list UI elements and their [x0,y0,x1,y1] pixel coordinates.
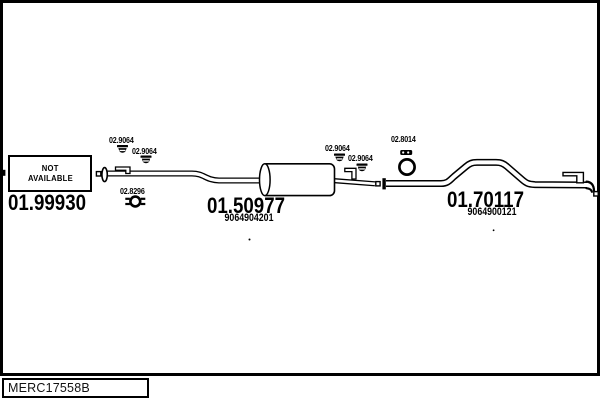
clamp-icon-3 [334,154,345,162]
print-mark-comma [249,239,251,241]
oem-number-rear-pipe: 9064900121 [454,207,531,218]
clamp-icon-4 [357,164,368,172]
front-pipe-flange-icon [102,168,107,182]
catalog-code-box: MERC17558B [2,378,149,398]
not-available-box: NOT AVAILABLE [8,155,92,192]
part-number-front-pipe: 01.99930 [8,192,86,214]
connector-square-middle [376,182,380,186]
connector-square-end [594,192,598,196]
fitting-label-clamp-4: 02.9064 [348,154,373,163]
catalog-code: MERC17558B [8,381,90,395]
clamp-icon-1 [117,145,128,153]
muffler-drawing [260,164,335,196]
exhaust-system-diagram: NOT AVAILABLE 01.99930 01.50977 01.70117… [0,0,600,400]
rubber-ring-hanger-icon [399,150,414,175]
fitting-label-clamp-2: 02.9064 [132,147,157,156]
fitting-label-clamp-1: 02.9064 [109,136,134,145]
oem-number-muffler: 9064904201 [211,213,288,224]
clamp-icon-2 [141,156,152,164]
fitting-label-connector-clamp: 02.8296 [120,187,145,196]
left-border-tick [0,170,5,176]
rear-pipe-flange-icon [382,178,385,189]
outlet-pipe-hanger-bracket-icon [345,168,356,179]
connector-square-left [96,172,100,176]
tail-pipe-hanger-bracket-icon [563,172,583,182]
fitting-label-ring-hanger: 02.8014 [391,135,416,144]
front-pipe-drawing [106,174,264,181]
muffler-outlet-pipe-drawing [332,181,375,184]
print-mark-dot [493,229,495,231]
not-available-line2: AVAILABLE [27,174,72,184]
pipe-connector-clamp-icon [125,197,145,207]
fitting-label-clamp-3: 02.9064 [325,144,350,153]
